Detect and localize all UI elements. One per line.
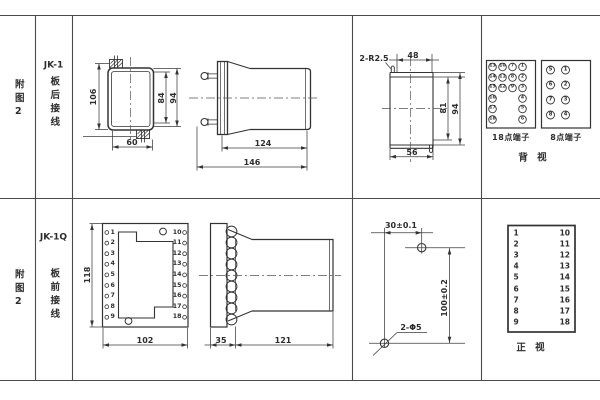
terminal-number: 5 bbox=[521, 107, 524, 112]
table-cell: 10 bbox=[560, 229, 570, 237]
terminal-number: 1 bbox=[521, 65, 524, 70]
terminal-number: 5 bbox=[549, 67, 553, 72]
dim-label-2phi5: 2-Φ5 bbox=[400, 324, 421, 332]
table-cell: 7 bbox=[514, 296, 519, 304]
table-cell: 16 bbox=[560, 296, 570, 304]
rear-view-label: 背 视 bbox=[518, 153, 549, 163]
terminal-number: 3 bbox=[111, 251, 115, 257]
text-layer: 附图2 JK-1 板后接线 附图2 JK-1Q 板前接线 106 84 94 6… bbox=[0, 0, 600, 400]
terminal-number: 11 bbox=[499, 75, 505, 80]
table-cell: 12 bbox=[560, 251, 570, 259]
dim-label-56: 56 bbox=[406, 149, 417, 157]
terminal-number: 9 bbox=[511, 86, 514, 91]
row2-figure-label: 附图2 bbox=[13, 269, 23, 311]
dim-label-48: 48 bbox=[407, 52, 418, 60]
dim-label-2R25: 2-R2.5 bbox=[359, 55, 388, 63]
terminal-number: 2 bbox=[564, 82, 568, 87]
dim-label-146: 146 bbox=[244, 159, 261, 167]
terminal-number: 14 bbox=[173, 272, 182, 278]
dim-label-94: 94 bbox=[170, 92, 178, 103]
table-cell: 9 bbox=[514, 318, 519, 326]
terminal-number: 6 bbox=[111, 282, 115, 288]
dim-label-100: 100±0.2 bbox=[441, 279, 449, 317]
terminal-number: 4 bbox=[111, 261, 115, 267]
terminal-number: 4 bbox=[564, 112, 568, 117]
terminal-number: 1 bbox=[564, 67, 568, 72]
dim-label-94b: 94 bbox=[452, 103, 460, 114]
terminal-number: 15 bbox=[173, 282, 182, 288]
terminal-number: 18 bbox=[489, 117, 495, 122]
table-cell: 14 bbox=[560, 274, 570, 282]
terminal-number: 7 bbox=[549, 97, 553, 102]
table-cell: 13 bbox=[560, 263, 570, 271]
dim-label-35: 35 bbox=[215, 337, 226, 345]
terminal-18-title: 18点端子 bbox=[492, 134, 530, 142]
row2-model-label: JK-1Q bbox=[40, 234, 67, 243]
terminal-number: 7 bbox=[111, 293, 115, 299]
table-cell: 3 bbox=[514, 251, 519, 259]
relay-installation-figure-page: 附图2 JK-1 板后接线 附图2 JK-1Q 板前接线 106 84 94 6… bbox=[0, 0, 600, 400]
terminal-number: 17 bbox=[173, 304, 182, 310]
terminal-number: 9 bbox=[111, 314, 115, 320]
table-cell: 11 bbox=[560, 240, 570, 248]
terminal-number: 10 bbox=[499, 65, 505, 70]
table-cell: 2 bbox=[514, 240, 519, 248]
terminal-number: 14 bbox=[489, 75, 495, 80]
front-view-label: 正 视 bbox=[516, 343, 547, 353]
terminal-number: 12 bbox=[173, 251, 182, 257]
terminal-number: 16 bbox=[489, 96, 495, 101]
terminal-number: 16 bbox=[173, 293, 182, 299]
terminal-number: 8 bbox=[111, 304, 115, 310]
terminal-number: 7 bbox=[511, 65, 514, 70]
dim-label-102: 102 bbox=[137, 337, 154, 345]
row1-figure-label: 附图2 bbox=[13, 79, 23, 121]
table-cell: 8 bbox=[514, 307, 519, 315]
dim-label-60: 60 bbox=[126, 139, 137, 147]
table-cell: 4 bbox=[514, 263, 519, 271]
table-cell: 5 bbox=[514, 274, 519, 282]
terminal-number: 17 bbox=[489, 107, 495, 112]
terminal-number: 5 bbox=[111, 272, 115, 278]
row2-wiring-label: 板前接线 bbox=[49, 268, 59, 322]
dim-label-121: 121 bbox=[275, 337, 292, 345]
terminal-8-title: 8点端子 bbox=[550, 134, 582, 142]
dim-label-84: 84 bbox=[158, 92, 166, 103]
dim-label-30: 30±0.1 bbox=[385, 222, 417, 230]
terminal-number: 15 bbox=[489, 86, 495, 91]
terminal-number: 11 bbox=[173, 240, 182, 246]
dim-label-81: 81 bbox=[440, 102, 448, 113]
dim-label-106: 106 bbox=[90, 88, 98, 105]
row1-wiring-label: 板后接线 bbox=[49, 76, 59, 130]
table-cell: 15 bbox=[560, 285, 570, 293]
terminal-number: 13 bbox=[173, 261, 182, 267]
table-cell: 17 bbox=[560, 307, 570, 315]
terminal-number: 12 bbox=[499, 86, 505, 91]
terminal-number: 18 bbox=[173, 314, 182, 320]
terminal-number: 13 bbox=[489, 65, 495, 70]
terminal-number: 2 bbox=[521, 75, 524, 80]
terminal-number: 6 bbox=[549, 82, 553, 87]
table-cell: 6 bbox=[514, 285, 519, 293]
terminal-number: 1 bbox=[111, 229, 115, 235]
terminal-number: 3 bbox=[564, 97, 568, 102]
terminal-number: 8 bbox=[549, 112, 553, 117]
terminal-number: 2 bbox=[111, 240, 115, 246]
terminal-number: 10 bbox=[173, 229, 182, 235]
terminal-number: 8 bbox=[511, 75, 514, 80]
dim-label-118: 118 bbox=[84, 267, 92, 284]
table-cell: 18 bbox=[560, 318, 570, 326]
dim-label-124: 124 bbox=[255, 140, 272, 148]
terminal-number: 6 bbox=[521, 117, 524, 122]
terminal-number: 4 bbox=[521, 96, 524, 101]
terminal-number: 3 bbox=[521, 86, 524, 91]
table-cell: 1 bbox=[514, 229, 519, 237]
row1-model-label: JK-1 bbox=[44, 62, 64, 71]
